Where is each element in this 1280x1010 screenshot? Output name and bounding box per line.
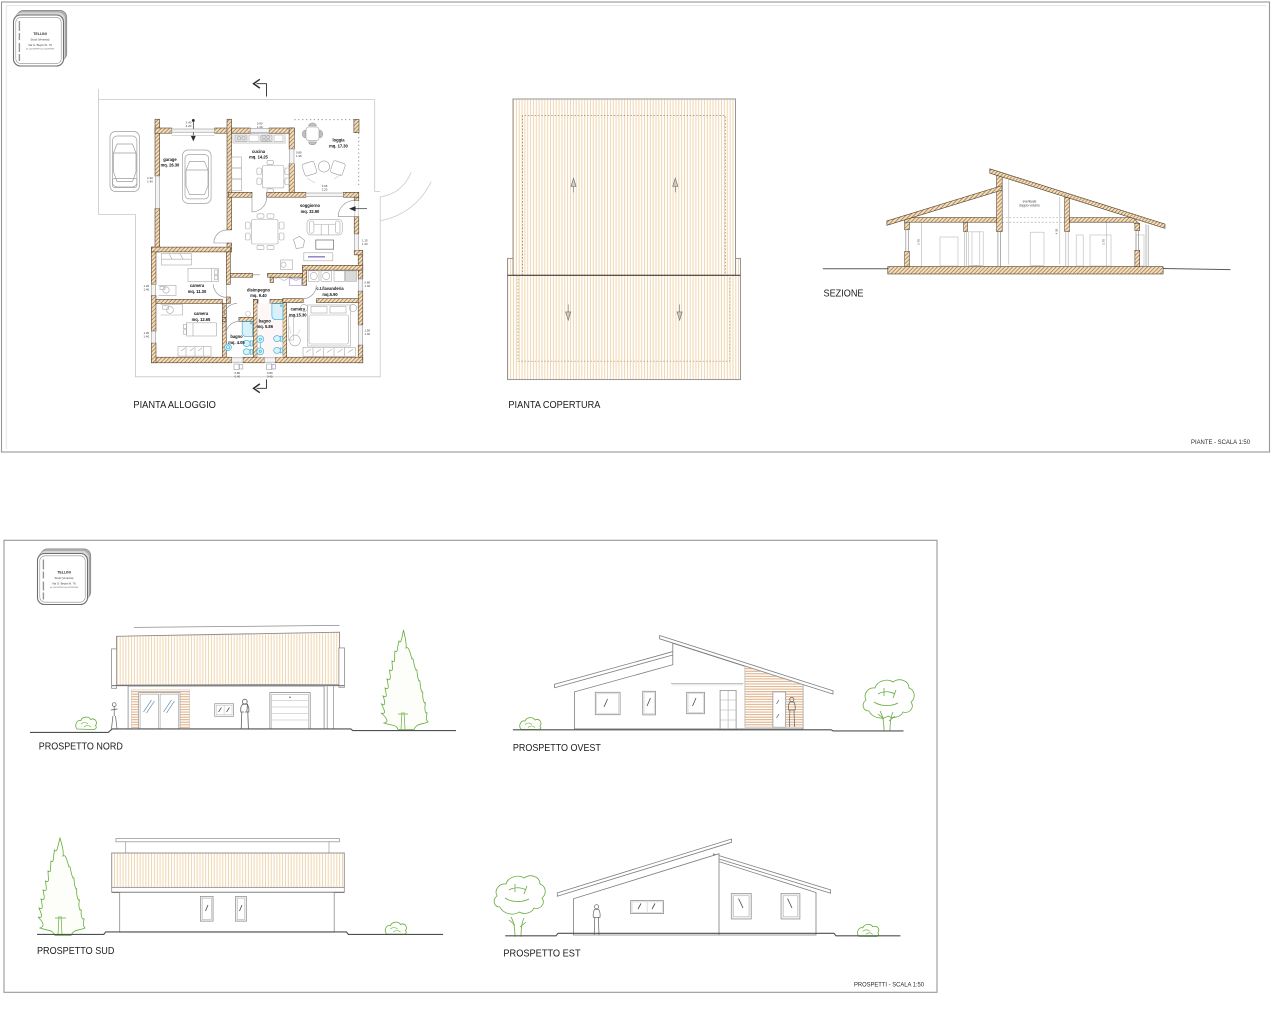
svg-text:Studi (Venezia): Studi (Venezia) xyxy=(55,576,74,580)
svg-text:1.40: 1.40 xyxy=(364,284,370,288)
svg-text:cucina: cucina xyxy=(252,149,266,154)
svg-text:0.40: 0.40 xyxy=(267,375,273,379)
svg-text:mq.5.90: mq.5.90 xyxy=(322,292,338,297)
svg-text:mq. 17.30: mq. 17.30 xyxy=(329,143,348,148)
svg-text:PROSPETTO SUD: PROSPETTO SUD xyxy=(37,946,114,957)
svg-text:Via G. Bepini N. 76: Via G. Bepini N. 76 xyxy=(28,43,52,47)
svg-text:SEZIONE: SEZIONE xyxy=(824,288,864,299)
svg-text:disimpegno: disimpegno xyxy=(247,287,270,292)
svg-text:mq.15.30: mq.15.30 xyxy=(289,312,307,317)
svg-text:1.40: 1.40 xyxy=(364,332,370,336)
svg-text:camera: camera xyxy=(291,307,306,312)
svg-text:bagno: bagno xyxy=(230,334,243,339)
svg-text:bagno: bagno xyxy=(259,318,272,323)
svg-text:0.40: 0.40 xyxy=(234,375,240,379)
svg-text:garage: garage xyxy=(163,157,177,162)
svg-text:2.70: 2.70 xyxy=(1101,239,1105,245)
svg-text:mq. 5.86: mq. 5.86 xyxy=(257,324,274,329)
svg-text:PIANTE - SCALA 1:50: PIANTE - SCALA 1:50 xyxy=(1191,439,1250,446)
svg-text:TELLINI: TELLINI xyxy=(57,571,71,575)
svg-text:tel. 0421/99999 fax 0421/99990: tel. 0421/99999 fax 0421/99990 xyxy=(50,586,79,589)
svg-text:soggiorno: soggiorno xyxy=(300,203,321,208)
svg-text:mq. 4.05: mq. 4.05 xyxy=(228,340,245,345)
svg-text:1.40: 1.40 xyxy=(143,335,149,339)
svg-text:2.20: 2.20 xyxy=(322,188,328,192)
svg-text:2.70: 2.70 xyxy=(917,239,921,245)
svg-text:1.40: 1.40 xyxy=(143,288,149,292)
svg-text:camera: camera xyxy=(190,283,205,288)
svg-text:PROSPETTO OVEST: PROSPETTO OVEST xyxy=(513,743,602,754)
svg-text:mq. 26.30: mq. 26.30 xyxy=(161,163,180,168)
svg-text:Via G. Bepini N. 76: Via G. Bepini N. 76 xyxy=(52,582,76,586)
svg-text:mq. 11.30: mq. 11.30 xyxy=(188,289,207,294)
svg-text:PIANTA ALLOGGIO: PIANTA ALLOGGIO xyxy=(133,400,216,411)
svg-text:camera: camera xyxy=(194,311,209,316)
svg-text:mq. 32.90: mq. 32.90 xyxy=(301,209,320,214)
svg-text:1.40: 1.40 xyxy=(362,242,368,246)
svg-text:c.t./lavanderia: c.t./lavanderia xyxy=(316,286,344,291)
svg-text:PROSPETTO NORD: PROSPETTO NORD xyxy=(39,741,123,752)
svg-text:2.20: 2.20 xyxy=(186,124,192,128)
svg-text:1.36: 1.36 xyxy=(296,154,302,158)
svg-text:PROSPETTI - SCALA 1:50: PROSPETTI - SCALA 1:50 xyxy=(854,981,924,988)
svg-text:1.40: 1.40 xyxy=(147,180,153,184)
svg-text:loggia: loggia xyxy=(332,138,345,143)
svg-text:mq. 9.40: mq. 9.40 xyxy=(250,293,267,298)
svg-text:tel. 0421/99999 fax 0421/99990: tel. 0421/99999 fax 0421/99990 xyxy=(26,48,55,51)
svg-text:PIANTA COPERTURA: PIANTA COPERTURA xyxy=(508,400,600,411)
svg-text:PROSPETTO EST: PROSPETTO EST xyxy=(503,948,581,959)
svg-text:mq. 14.25: mq. 14.25 xyxy=(249,155,268,160)
svg-text:1.40: 1.40 xyxy=(257,125,263,129)
svg-text:mq. 12.65: mq. 12.65 xyxy=(192,317,211,322)
svg-text:Studi (Venezia): Studi (Venezia) xyxy=(31,38,50,42)
svg-text:TELLINI: TELLINI xyxy=(33,32,47,36)
svg-text:doppio volume: doppio volume xyxy=(1019,204,1040,208)
svg-text:4.28: 4.28 xyxy=(1055,228,1059,234)
